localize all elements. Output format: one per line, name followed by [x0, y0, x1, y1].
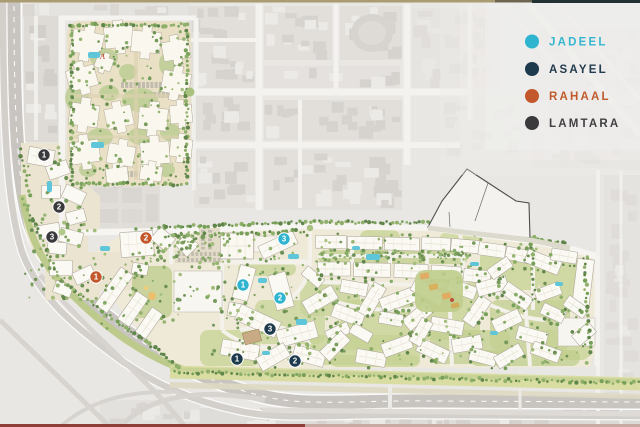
svg-text:3: 3	[50, 233, 55, 242]
svg-text:2: 2	[144, 234, 149, 243]
svg-text:2: 2	[57, 203, 62, 212]
svg-text:3: 3	[282, 235, 287, 244]
svg-text:LAMTARA: LAMTARA	[549, 118, 620, 130]
svg-text:2: 2	[293, 357, 298, 366]
svg-text:RAHAAL: RAHAAL	[549, 91, 611, 103]
svg-text:3: 3	[268, 325, 273, 334]
svg-text:JADEEL: JADEEL	[549, 37, 608, 49]
svg-text:1: 1	[235, 355, 240, 364]
svg-text:ASAYEL: ASAYEL	[549, 64, 608, 76]
svg-text:1: 1	[94, 273, 99, 282]
svg-text:A: A	[99, 52, 105, 61]
svg-text:2: 2	[278, 294, 283, 303]
svg-text:1: 1	[241, 281, 246, 290]
svg-text:1: 1	[42, 151, 47, 160]
